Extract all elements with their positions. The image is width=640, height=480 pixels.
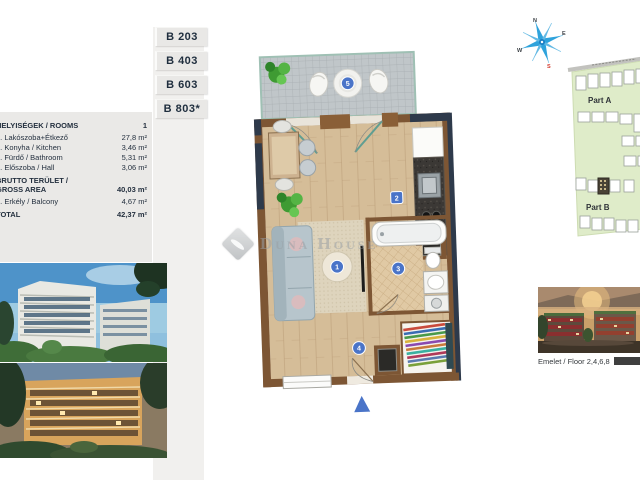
balcony-area: 5 — [260, 52, 416, 119]
total-value: 42,37 m² — [117, 210, 147, 219]
room-marker-1: 1 — [331, 260, 344, 273]
gross-label-line1: BRUTTO TERÜLET / — [0, 176, 68, 185]
duna-house-logo-icon — [221, 227, 255, 261]
row-label: 3. Fürdő / Bathroom — [0, 153, 63, 162]
part-b-label: Part B — [586, 203, 610, 212]
part-a-label: Part A — [588, 96, 611, 105]
room-marker-3: 3 — [392, 262, 405, 275]
unit-button-b603[interactable]: B 603 — [155, 75, 207, 94]
row-label: 4. Előszoba / Hall — [0, 163, 54, 172]
unit-button-b203[interactable]: B 203 — [155, 27, 207, 46]
highlighted-building — [598, 178, 609, 194]
site-map: Part A Part B — [562, 52, 640, 237]
table-row: 1. Lakószoba+Étkező 27,8 m² — [0, 133, 152, 142]
unit-button-b403[interactable]: B 403 — [155, 51, 207, 70]
gross-area-row: BRUTTO TERÜLET / — [0, 176, 152, 185]
sofa — [272, 226, 315, 321]
row-value: 3,46 m² — [122, 143, 147, 152]
row-value: 3,06 m² — [122, 163, 147, 172]
gross-area-row: GROSS AREA 40,03 m² — [0, 185, 152, 194]
building-photo-day — [0, 263, 167, 362]
balcony-label: 5. Erkély / Balcony — [0, 197, 58, 206]
building-photo-evening — [0, 363, 167, 458]
row-value: 5,31 m² — [122, 153, 147, 162]
svg-text:E: E — [562, 31, 566, 37]
total-label: TOTAL — [0, 210, 20, 219]
rooms-header-label: HELYISÉGEK / ROOMS — [0, 121, 78, 130]
floor-caption: Emelet / Floor 2,4,6,8 — [538, 356, 640, 366]
svg-text:N: N — [533, 18, 537, 24]
row-label: 2. Konyha / Kitchen — [0, 143, 61, 152]
room-marker-4: 4 — [352, 341, 365, 354]
rooms-table: HELYISÉGEK / ROOMS 1 1. Lakószoba+Étkező… — [0, 112, 152, 262]
building-photo-sunset — [538, 287, 640, 353]
room-marker-2: 2 — [391, 191, 403, 203]
floor-indicator-bar — [614, 357, 640, 365]
floor-plan: 5 — [250, 49, 465, 420]
floor-caption-text: Emelet / Floor 2,4,6,8 — [538, 357, 610, 366]
table-row: 4. Előszoba / Hall 3,06 m² — [0, 163, 152, 172]
svg-text:W: W — [517, 48, 523, 54]
row-label: 1. Lakószoba+Étkező — [0, 133, 68, 142]
rooms-header-value: 1 — [143, 121, 147, 130]
room-marker-5: 5 — [341, 77, 354, 90]
svg-text:2: 2 — [395, 196, 399, 203]
gross-value: 40,03 m² — [117, 185, 147, 194]
balcony-value: 4,67 m² — [122, 197, 147, 206]
table-row: 3. Fürdő / Bathroom 5,31 m² — [0, 153, 152, 162]
svg-text:5: 5 — [346, 81, 350, 88]
svg-text:4: 4 — [357, 346, 361, 353]
entrance-arrow-icon — [354, 396, 371, 413]
rooms-header: HELYISÉGEK / ROOMS 1 — [0, 121, 152, 130]
svg-text:S: S — [547, 64, 551, 70]
unit-button-b803[interactable]: B 803* — [155, 99, 207, 118]
svg-text:3: 3 — [396, 266, 400, 273]
svg-text:1: 1 — [335, 264, 339, 271]
total-row: TOTAL 42,37 m² — [0, 210, 152, 219]
table-row: 2. Konyha / Kitchen 3,46 m² — [0, 143, 152, 152]
gross-label-line2: GROSS AREA — [0, 185, 46, 194]
balcony-row: 5. Erkély / Balcony 4,67 m² — [0, 197, 152, 206]
row-value: 27,8 m² — [122, 133, 147, 142]
